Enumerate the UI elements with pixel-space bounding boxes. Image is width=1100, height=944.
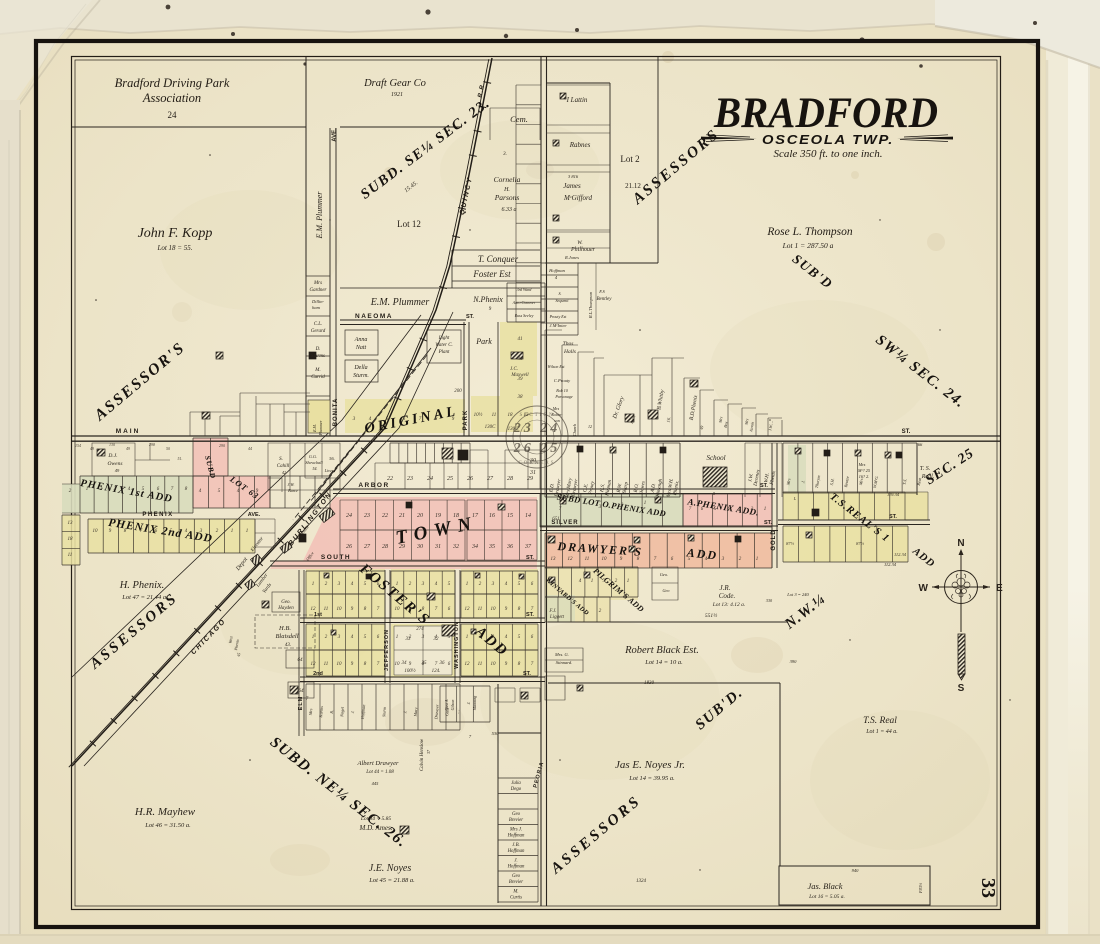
svg-text:130C: 130C [485,425,497,430]
svg-text:40: 40 [518,357,524,362]
svg-text:James: James [563,182,581,190]
svg-text:10: 10 [602,557,608,562]
svg-text:Mrs: Mrs [858,462,866,467]
svg-text:29: 29 [527,476,533,482]
svg-text:Jas E. Noyes Jr.: Jas E. Noyes Jr. [615,759,685,771]
svg-text:12: 12 [465,662,471,667]
svg-text:Liverd: Liverd [324,468,337,473]
svg-text:66: 66 [918,442,923,447]
svg-text:24: 24 [427,475,433,482]
svg-text:Real.: Real. [921,474,935,480]
svg-text:Lot 14 = 39.95 a.: Lot 14 = 39.95 a. [628,775,675,782]
svg-text:12: 12 [311,662,317,667]
svg-text:CORNERS: CORNERS [518,461,555,466]
svg-text:ST.: ST. [764,520,772,526]
svg-text:C.Prouty: C.Prouty [554,378,570,383]
svg-text:Bradford Driving Park: Bradford Driving Park [115,76,230,90]
svg-text:Lot 34 = 5.85: Lot 34 = 5.85 [360,815,392,822]
svg-text:290: 290 [219,443,225,448]
svg-text:Maxwell: Maxwell [510,373,529,378]
svg-text:56.: 56. [329,456,335,461]
svg-text:Lot 3 = 240: Lot 3 = 240 [786,592,809,597]
svg-text:49: 49 [115,468,120,473]
svg-text:54.: 54. [313,466,318,471]
svg-text:R.: R. [329,710,334,715]
svg-text:Hayden: Hayden [277,606,294,611]
svg-text:Manning: Manning [472,696,477,711]
svg-text:37: 37 [524,544,532,550]
svg-text:28: 28 [382,544,388,550]
svg-text:33: 33 [977,878,999,898]
svg-text:SECTION: SECTION [519,413,554,418]
svg-text:H.B.: H.B. [278,625,291,632]
svg-text:445: 445 [372,781,380,786]
svg-text:PHENIX: PHENIX [142,512,173,518]
svg-text:24: 24 [168,110,178,120]
svg-text:1324: 1324 [636,879,647,884]
svg-text:45: 45 [236,652,242,657]
svg-text:Lot 13: 4.12 a.: Lot 13: 4.12 a. [712,601,746,608]
svg-text:1: 1 [627,579,630,584]
svg-text:12: 12 [588,424,592,429]
svg-text:ARBOR: ARBOR [358,482,389,489]
svg-text:Hoffman: Hoffman [507,849,525,854]
svg-text:21.12: 21.12 [625,182,641,190]
svg-text:1830: 1830 [644,681,655,686]
svg-text:1: 1 [466,582,469,587]
svg-text:Gardner: Gardner [309,288,326,293]
svg-text:I Lattin: I Lattin [566,96,588,104]
svg-text:11: 11 [478,607,483,612]
svg-text:27: 27 [364,544,371,550]
svg-text:330: 330 [766,598,773,603]
svg-text:P.03½: P.03½ [918,883,923,894]
svg-text:274: 274 [416,627,424,632]
svg-text:Nagel: Nagel [339,706,345,718]
svg-text:Park: Park [475,337,492,346]
svg-text:H.R. Mayhew: H.R. Mayhew [134,806,196,818]
svg-text:36: 36 [506,544,513,550]
svg-text:Rabnes: Rabnes [569,141,591,149]
svg-text:87½: 87½ [856,541,865,546]
svg-text:17: 17 [472,513,479,519]
svg-text:32: 32 [434,637,440,642]
svg-text:11: 11 [492,413,497,418]
svg-text:100½: 100½ [404,669,416,674]
svg-text:16? 2.: 16? 2. [859,474,869,479]
svg-text:Liggett: Liggett [549,615,565,620]
svg-text:F.S: F.S [598,289,605,294]
svg-text:Anna: Anna [354,337,368,343]
svg-text:24: 24 [346,512,352,519]
svg-text:390: 390 [790,659,798,664]
svg-text:M.D. Ames.: M.D. Ames. [359,824,393,832]
svg-text:WASHINGTON: WASHINGTON [454,621,460,669]
svg-text:ST.: ST. [902,429,911,435]
svg-text:Mrs: Mrs [313,281,322,286]
svg-text:Cornelia: Cornelia [494,175,521,184]
svg-text:Hoffman: Hoffman [507,834,525,839]
svg-text:Brevier: Brevier [509,880,523,885]
svg-text:C.L.: C.L. [314,322,323,327]
svg-text:Sturm.: Sturm. [353,373,369,379]
svg-text:651: 651 [552,517,560,522]
svg-text:41: 41 [518,337,523,342]
svg-text:Brevier: Brevier [509,818,523,823]
svg-text:22: 22 [387,476,393,482]
svg-text:ELM: ELM [298,696,304,711]
svg-text:G.G.: G.G. [309,454,317,459]
svg-text:1: 1 [312,635,315,640]
svg-text:Association: Association [142,91,201,105]
svg-text:D.: D. [315,347,321,352]
svg-text:1921: 1921 [391,92,403,98]
svg-text:10: 10 [491,607,497,612]
svg-text:J.B.: J.B. [512,843,519,848]
svg-text:Lot 46 = 31.50 a.: Lot 46 = 31.50 a. [144,822,191,829]
svg-text:J.R.: J.R. [720,584,731,592]
svg-text:John F. Kopp: John F. Kopp [138,226,213,241]
svg-text:MAIN: MAIN [116,428,141,435]
svg-text:1: 1 [644,501,647,506]
svg-text:AVE.: AVE. [248,512,261,518]
svg-text:E.M. Plummer: E.M. Plummer [315,191,324,240]
svg-text:Thos: Thos [563,341,574,347]
svg-text:Geo: Geo [512,812,521,817]
svg-text:J.: J. [514,859,517,864]
svg-text:49: 49 [699,425,705,430]
svg-text:13: 13 [68,521,74,526]
svg-text:1: 1 [396,582,399,587]
svg-text:Halls: Halls [563,349,576,355]
svg-text:Blaisdell: Blaisdell [275,633,298,640]
svg-text:200: 200 [454,389,462,394]
svg-text:38: 38 [518,395,524,400]
svg-text:MᶜGifford: MᶜGifford [563,194,593,202]
svg-text:Lot 16 = 5.05 a.: Lot 16 = 5.05 a. [808,894,845,900]
svg-text:Hoffman: Hoffman [548,268,566,273]
svg-text:Cahill: Cahill [277,464,290,469]
svg-text:Stinnard.: Stinnard. [556,660,572,665]
svg-text:N.Phenix: N.Phenix [472,295,503,304]
svg-text:1: 1 [231,529,234,534]
svg-text:Lot 47 = 21.44 a.: Lot 47 = 21.44 a. [121,594,168,601]
svg-text:Light: Light [438,336,450,341]
svg-text:Shewcball: Shewcball [305,460,323,465]
svg-text:Lot 14 = 10 a.: Lot 14 = 10 a. [644,659,683,666]
svg-text:50: 50 [166,446,170,451]
svg-text:Dego: Dego [510,787,522,792]
svg-text:19: 19 [435,513,441,519]
svg-text:87½: 87½ [786,541,795,546]
svg-text:Plant: Plant [438,350,450,355]
svg-text:Gilson: Gilson [450,700,455,711]
svg-text:Sturm: Sturm [381,707,387,717]
svg-text:11: 11 [478,662,483,667]
svg-text:J.: J. [350,710,355,713]
svg-text:Russ Seeley: Russ Seeley [514,313,534,318]
svg-text:119.34: 119.34 [887,492,900,497]
svg-text:10: 10 [337,607,343,612]
svg-text:Mrs J.: Mrs J. [509,828,522,833]
svg-text:W: W [919,583,929,594]
svg-text:R.Jones: R.Jones [564,255,579,260]
svg-text:14: 14 [525,512,531,519]
svg-text:26: 26 [467,476,473,482]
svg-text:Curtis: Curtis [510,896,522,901]
svg-text:JEFFERSON: JEFFERSON [384,629,390,671]
svg-text:Lot 1 = 287.50 a: Lot 1 = 287.50 a [782,241,834,250]
svg-text:R.L.Thompson: R.L.Thompson [588,291,593,319]
svg-text:1: 1 [591,579,594,584]
svg-text:M.: M. [314,368,320,373]
svg-text:23: 23 [364,513,370,519]
svg-text:Water C.: Water C. [435,343,453,348]
svg-text:ST.: ST. [466,314,474,320]
svg-text:31: 31 [529,470,536,476]
svg-text:Gerard: Gerard [311,329,326,334]
svg-text:H. Phenix.: H. Phenix. [119,580,165,591]
svg-text:J.: J. [402,710,407,713]
svg-text:1: 1 [756,557,759,562]
svg-text:36: 36 [440,661,446,666]
svg-text:Sturms: Sturms [311,354,325,359]
svg-text:1: 1 [312,582,315,587]
svg-text:Code.: Code. [719,592,736,600]
svg-text:1: 1 [246,529,249,534]
svg-text:Lot 18 = 55.: Lot 18 = 55. [156,244,192,252]
svg-text:10½: 10½ [474,413,483,418]
svg-text:ham: ham [312,305,321,310]
svg-text:E: E [996,583,1003,594]
svg-text:Scale 350 ft. to one inch.: Scale 350 ft. to one inch. [773,148,882,160]
svg-text:Robert Black Est.: Robert Black Est. [624,645,699,656]
svg-text:33: 33 [406,637,412,642]
svg-text:ST.: ST. [760,483,768,489]
svg-text:18: 18 [453,513,459,519]
svg-text:ST.: ST. [526,612,534,618]
svg-text:S.: S. [559,291,562,296]
svg-text:940: 940 [852,868,860,873]
svg-text:ST.: ST. [523,671,531,677]
svg-text:20: 20 [417,513,423,519]
svg-text:11: 11 [324,607,329,612]
svg-text:Sequmit: Sequmit [556,298,570,303]
svg-text:18: 18 [68,537,74,542]
svg-text:Geo: Geo [663,588,670,593]
svg-text:21: 21 [399,513,405,519]
svg-text:112.34: 112.34 [884,562,897,567]
svg-text:Mᶜ? 25: Mᶜ? 25 [857,468,870,473]
svg-text:School: School [706,454,725,462]
svg-text:35: 35 [422,661,428,666]
svg-text:BONITA: BONITA [333,398,339,427]
svg-text:49: 49 [126,446,130,451]
svg-text:AVE.: AVE. [332,128,338,142]
svg-text:23 24: 23 24 [513,421,561,436]
svg-text:SOUTH: SOUTH [321,554,351,561]
svg-text:Parsons: Parsons [494,193,520,202]
svg-text:Mrs. G.: Mrs. G. [554,652,569,657]
svg-text:1: 1 [86,487,89,492]
svg-text:BRADFORD: BRADFORD [713,90,938,137]
svg-text:13: 13 [551,557,557,562]
svg-text:Jas. Black: Jas. Black [808,881,843,891]
svg-text:51.: 51. [178,456,183,461]
svg-text:10: 10 [395,662,401,667]
svg-text:…: … [455,710,460,714]
svg-text:Geo.: Geo. [660,572,669,577]
svg-text:Foster Est: Foster Est [472,269,511,279]
svg-text:Philhouer: Philhouer [570,247,596,253]
svg-text:154: 154 [75,443,81,448]
svg-text:NAEOMA: NAEOMA [355,313,393,320]
svg-text:ST.: ST. [889,514,897,520]
svg-text:32: 32 [452,544,459,550]
svg-text:Geo: Geo [512,874,521,879]
svg-text:31: 31 [434,544,441,550]
svg-text:530: 530 [492,731,500,736]
svg-text:Rose L. Thompson: Rose L. Thompson [766,226,853,238]
svg-text:Julia: Julia [511,781,521,786]
svg-text:J.C.: J.C. [510,367,518,372]
svg-text:10: 10 [491,662,497,667]
svg-text:11: 11 [324,662,329,667]
svg-text:3rd Ward: 3rd Ward [517,287,533,292]
svg-text:10: 10 [337,662,343,667]
svg-text:S: S [958,683,965,694]
svg-text:3.: 3. [503,152,507,157]
svg-text:Prouty Est: Prouty Est [549,314,568,319]
svg-text:W.: W. [577,240,582,246]
svg-text:12: 12 [568,557,574,562]
svg-text:28: 28 [507,476,513,482]
svg-text:16.: 16. [666,417,672,423]
svg-text:3 816: 3 816 [568,174,579,179]
svg-text:M.: M. [512,890,518,895]
svg-text:Hoffman: Hoffman [507,865,525,870]
svg-text:Mary: Mary [413,707,419,718]
svg-text:34: 34 [471,543,478,550]
svg-text:26: 26 [346,544,352,550]
svg-text:10: 10 [395,607,401,612]
svg-text:J.: J. [466,702,471,705]
svg-text:E.M. Plummer: E.M. Plummer [370,297,430,308]
svg-text:Plummer: Plummer [318,420,323,436]
svg-text:Parsonage: Parsonage [554,394,573,399]
svg-text:Lot 2: Lot 2 [620,154,639,164]
svg-text:25: 25 [447,476,453,482]
svg-text:12: 12 [465,607,471,612]
svg-text:29: 29 [399,544,405,550]
svg-text:6.33 a: 6.33 a [502,207,517,213]
svg-text:L: L [793,496,797,501]
svg-text:Gust: Gust [444,707,450,716]
svg-text:11: 11 [68,553,73,558]
svg-text:T. Conquer: T. Conquer [478,254,519,264]
svg-text:J.W.: J.W. [287,482,294,487]
svg-text:Cem.: Cem. [510,114,528,124]
svg-text:27: 27 [487,476,494,482]
svg-text:124.: 124. [432,669,441,674]
svg-text:Sturms: Sturms [318,705,324,717]
svg-text:Dillin-: Dillin- [311,299,325,304]
svg-text:Bentley: Bentley [597,297,613,302]
svg-text:12: 12 [311,607,317,612]
svg-text:Lot 45 = 21.88 a.: Lot 45 = 21.88 a. [368,877,415,884]
svg-text:Calvin Henslow: Calvin Henslow [420,738,425,771]
svg-text:43.: 43. [285,643,291,648]
svg-text:1: 1 [466,635,469,640]
svg-text:Church: Church [572,424,577,436]
svg-text:15: 15 [507,513,513,519]
svg-text:35: 35 [488,544,495,550]
svg-text:E.M.: E.M. [312,424,317,433]
svg-text:T. S.: T. S. [920,466,930,472]
svg-text:Draft Gear Co: Draft Gear Co [363,78,426,89]
svg-text:T.S. Real: T.S. Real [863,716,897,726]
svg-text:S.: S. [279,457,283,462]
svg-text:J.E. Noyes: J.E. Noyes [369,863,412,874]
svg-text:GOLD: GOLD [771,529,777,550]
svg-text:Wilson Est: Wilson Est [547,364,565,369]
svg-text:1: 1 [396,635,399,640]
svg-text:Natt: Natt [355,345,367,351]
svg-text:16: 16 [489,513,495,519]
svg-text:PARK: PARK [463,410,469,431]
svg-text:N: N [957,538,964,549]
svg-text:1: 1 [764,507,767,512]
svg-text:Lot 12: Lot 12 [397,219,421,229]
svg-text:22: 22 [382,513,388,519]
svg-text:42: 42 [282,470,286,475]
svg-text:ST.: ST. [526,555,534,561]
svg-text:J.MᶜIntee: J.MᶜIntee [549,323,566,328]
svg-text:Mrs: Mrs [308,708,314,717]
svg-text:Della: Della [353,365,367,371]
svg-text:11: 11 [585,557,590,562]
svg-text:OSCEOLA TWP.: OSCEOLA TWP. [762,132,894,147]
svg-text:10: 10 [93,529,99,534]
svg-text:112.34: 112.34 [894,552,907,557]
svg-text:18: 18 [508,413,514,418]
svg-text:23: 23 [407,476,413,482]
svg-text:64: 64 [299,689,305,694]
svg-text:Burce: Burce [288,488,298,493]
svg-text:Lot 1 = 44 a.: Lot 1 = 44 a. [865,728,898,735]
svg-text:Lot 44 = 1.08: Lot 44 = 1.08 [365,770,394,775]
svg-text:64: 64 [298,658,304,663]
svg-text:1st: 1st [314,612,322,618]
svg-text:44: 44 [248,446,252,451]
svg-text:Albert Drawyer: Albert Drawyer [357,760,399,767]
svg-text:F.J.: F.J. [548,609,556,614]
svg-text:Bob 10: Bob 10 [556,388,567,393]
svg-text:551½: 551½ [705,612,717,619]
svg-text:34: 34 [402,661,408,666]
svg-text:26 25: 26 25 [513,441,561,456]
svg-text:Currid: Currid [311,375,325,380]
svg-text:Owens: Owens [108,461,123,467]
svg-text:Geo.: Geo. [281,600,291,605]
svg-text:2nd: 2nd [313,671,323,677]
svg-text:30: 30 [416,544,423,550]
svg-text:T.S.: T.S. [902,478,908,485]
svg-text:D.J.: D.J. [107,453,117,459]
